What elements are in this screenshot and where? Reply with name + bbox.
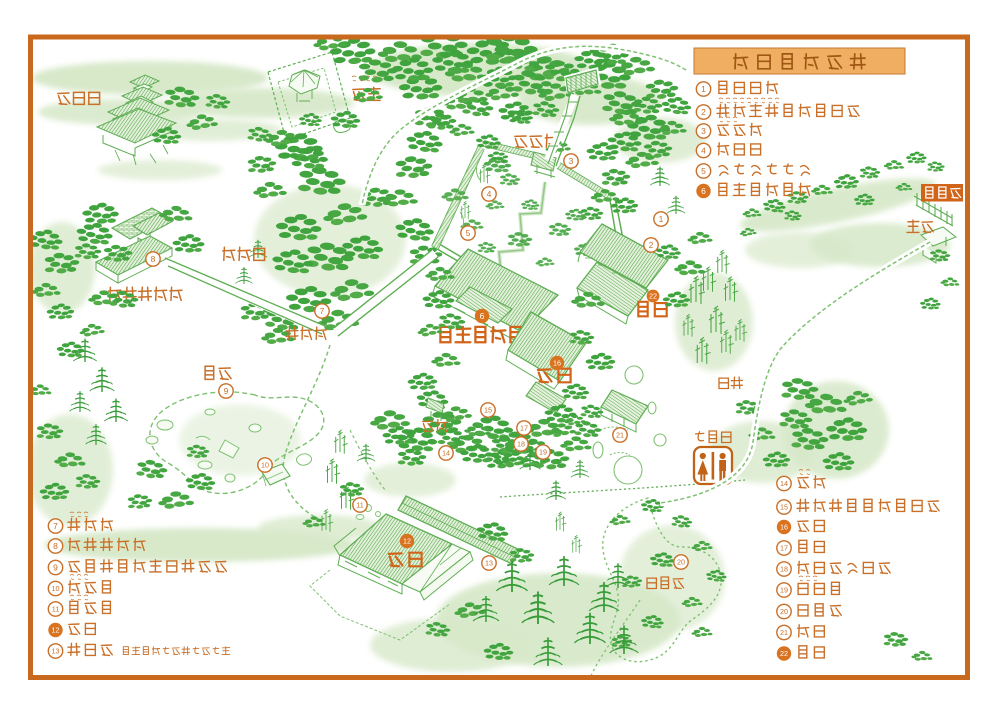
svg-text:2: 2	[701, 107, 706, 117]
svg-text:22: 22	[780, 649, 788, 658]
svg-text:20: 20	[780, 607, 788, 616]
svg-text:1: 1	[659, 214, 664, 224]
svg-text:19: 19	[780, 586, 788, 595]
svg-text:20: 20	[677, 558, 685, 567]
svg-text:4: 4	[487, 189, 492, 199]
svg-text:7: 7	[320, 306, 325, 316]
svg-text:14: 14	[442, 449, 450, 458]
svg-text:17: 17	[520, 424, 528, 433]
svg-text:13: 13	[485, 559, 493, 568]
svg-text:4: 4	[701, 146, 706, 156]
svg-text:16: 16	[780, 523, 788, 532]
svg-text:9: 9	[224, 386, 229, 396]
svg-text:13: 13	[52, 647, 60, 656]
svg-text:8: 8	[53, 541, 58, 551]
svg-text:18: 18	[517, 440, 525, 449]
svg-text:21: 21	[616, 431, 624, 440]
svg-text:16: 16	[553, 359, 561, 368]
svg-text:15: 15	[780, 503, 788, 512]
svg-text:21: 21	[780, 628, 788, 637]
svg-text:18: 18	[780, 565, 788, 574]
svg-text:2: 2	[649, 240, 654, 250]
svg-text:19: 19	[539, 448, 547, 457]
svg-text:9: 9	[53, 563, 58, 573]
svg-text:5: 5	[701, 166, 706, 176]
svg-text:12: 12	[403, 537, 411, 546]
svg-text:17: 17	[780, 544, 788, 553]
svg-text:11: 11	[52, 605, 59, 614]
svg-text:10: 10	[261, 461, 269, 470]
svg-text:12: 12	[52, 626, 60, 635]
svg-text:6: 6	[480, 311, 485, 321]
svg-text:6: 6	[701, 186, 706, 196]
svg-text:5: 5	[466, 228, 471, 238]
svg-text:8: 8	[151, 254, 156, 264]
svg-text:11: 11	[356, 501, 363, 510]
svg-text:7: 7	[53, 521, 58, 531]
svg-text:3: 3	[701, 126, 706, 136]
svg-text:10: 10	[52, 584, 60, 593]
svg-text:1: 1	[701, 84, 706, 94]
svg-text:3: 3	[569, 156, 574, 166]
svg-text:22: 22	[649, 292, 657, 301]
svg-text:14: 14	[780, 479, 788, 488]
svg-text:15: 15	[484, 406, 492, 415]
